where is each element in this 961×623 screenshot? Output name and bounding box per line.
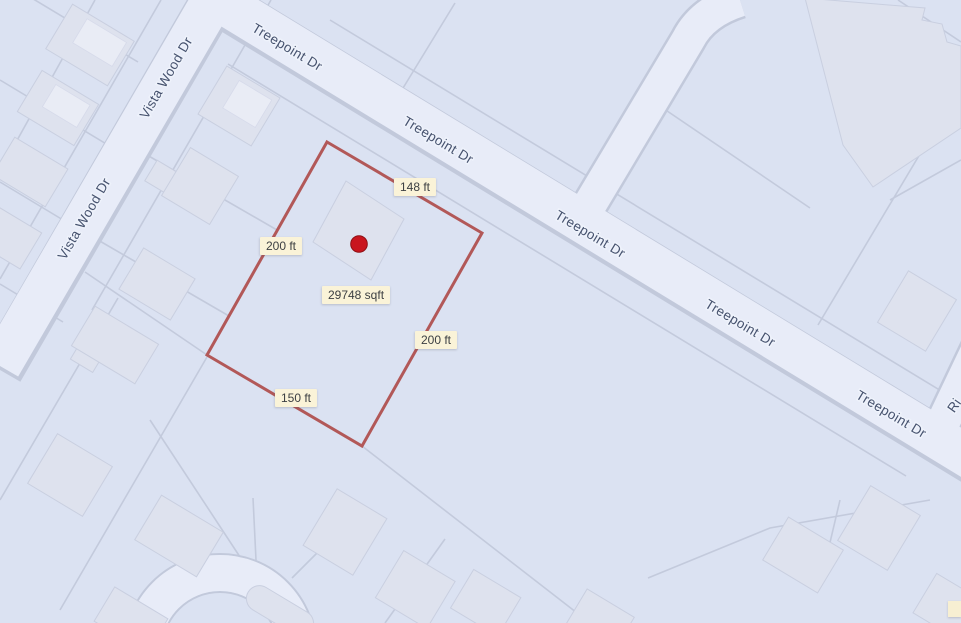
dimension-label-clipped bbox=[948, 601, 961, 617]
map-canvas[interactable]: Treepoint Dr Treepoint Dr Treepoint Dr T… bbox=[0, 0, 961, 623]
dimension-label-top: 148 ft bbox=[394, 178, 436, 196]
dimension-label-right: 200 ft bbox=[415, 331, 457, 349]
dimension-label-bottom: 150 ft bbox=[275, 389, 317, 407]
map-layer: Treepoint Dr Treepoint Dr Treepoint Dr T… bbox=[0, 0, 961, 623]
location-marker-icon[interactable] bbox=[351, 236, 368, 253]
area-label: 29748 sqft bbox=[322, 286, 390, 304]
dimension-label-left: 200 ft bbox=[260, 237, 302, 255]
